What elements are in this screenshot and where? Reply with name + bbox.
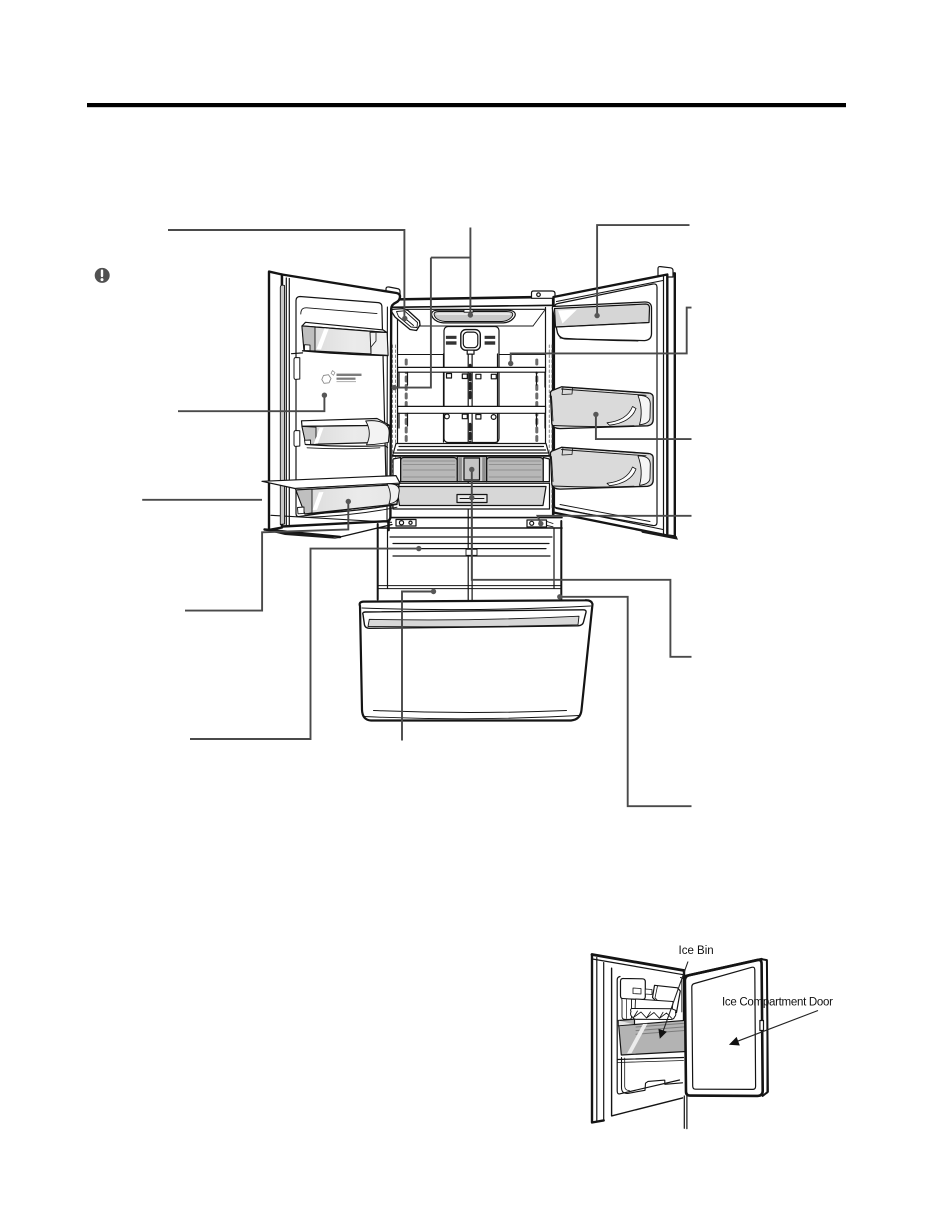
svg-text:Ice Compartment Door: Ice Compartment Door xyxy=(722,997,833,1009)
svg-text:Ice Bin: Ice Bin xyxy=(679,945,714,957)
